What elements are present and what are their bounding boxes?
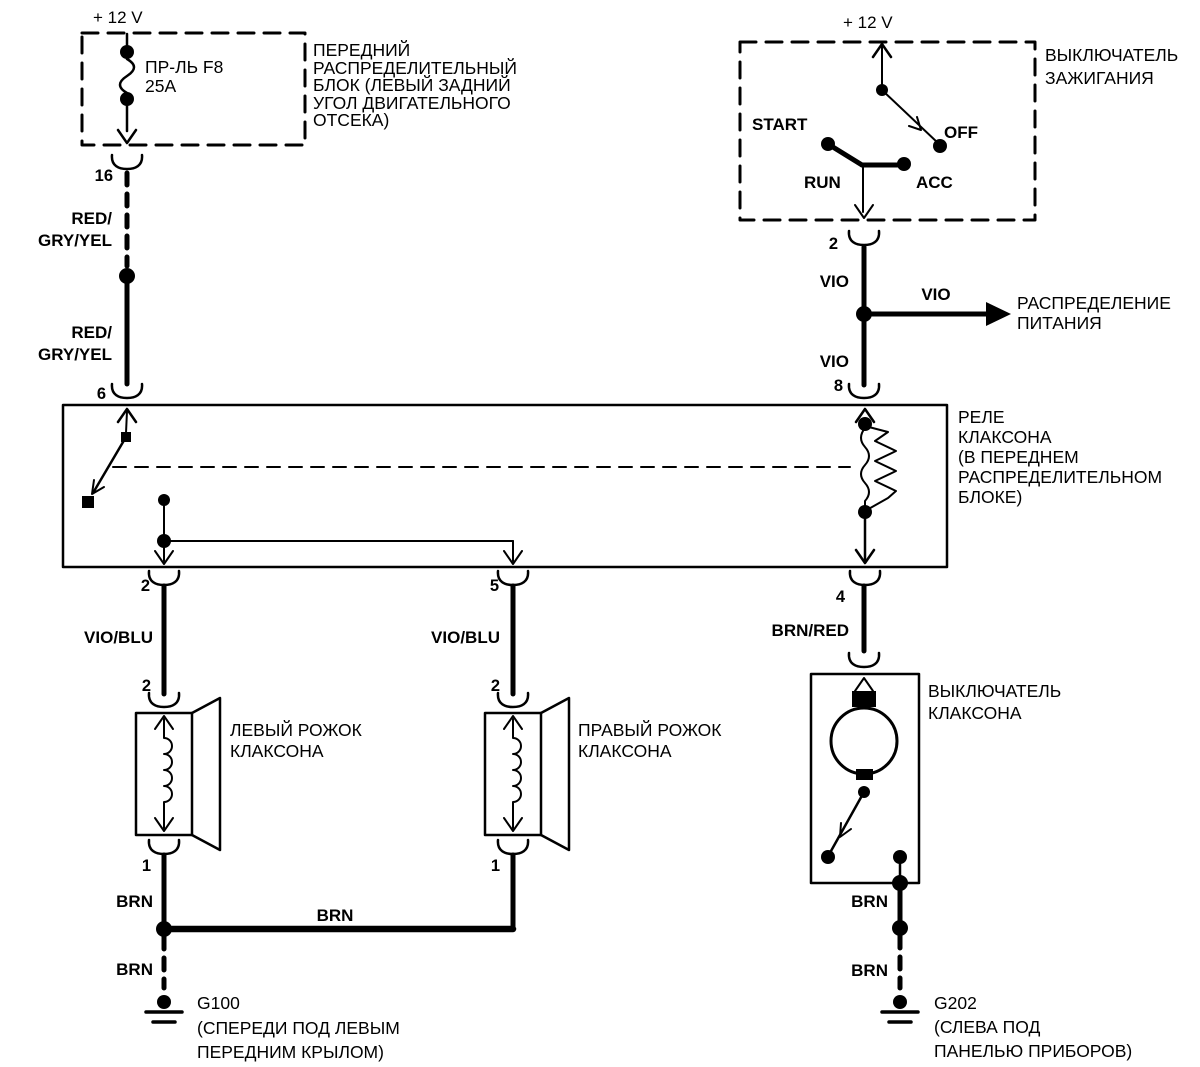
wire-label-brn-switch: BRN	[851, 892, 888, 911]
horn-switch: BRN/RED ВЫКЛЮЧАТЕЛЬ КЛАКСОНА BRN BRN G20…	[772, 586, 1133, 1061]
fuse-name: ПР-ЛЬ F8	[145, 57, 223, 77]
connector-icon	[112, 155, 142, 169]
relay-box-outline	[63, 405, 947, 567]
horn-wiring-diagram: + 12 V ПР-ЛЬ F8 25A ПЕРЕДНИЙ РАСПРЕДЕЛИТ…	[0, 0, 1200, 1067]
horn-trumpet-icon	[192, 698, 220, 850]
ground-g100-label-line2: ПЕРЕДНИМ КРЫЛОМ)	[197, 1042, 384, 1062]
horn-switch-label-line2: КЛАКСОНА	[928, 703, 1022, 723]
relay-label-line5: БЛОКЕ)	[958, 487, 1022, 507]
pin-8: 8	[834, 377, 843, 395]
connector-icon	[149, 840, 179, 854]
wiring-diagram-page: + 12 V ПР-ЛЬ F8 25A ПЕРЕДНИЙ РАСПРЕДЕЛИТ…	[0, 0, 1200, 1067]
ignition-arm-off	[882, 90, 938, 143]
ground-g202-label-line1: (СЛЕВА ПОД	[934, 1017, 1040, 1037]
ground-g100-label-line1: (СПЕРЕДИ ПОД ЛЕВЫМ	[197, 1018, 400, 1038]
fuse-element-icon	[120, 59, 134, 93]
connector-icon	[849, 231, 879, 245]
wire-label-red-gry-yel-upper-1: RED/	[71, 209, 112, 228]
fuse-terminal-top	[120, 45, 134, 59]
wire-label-red-gry-yel-lower-1: RED/	[71, 323, 112, 342]
fuse-box-outline	[82, 33, 305, 145]
supply-label-right: + 12 V	[843, 13, 893, 32]
pin-16: 16	[95, 167, 113, 185]
relay-label-line1: РЕЛЕ	[958, 407, 1005, 427]
pin-6: 6	[97, 385, 106, 403]
vio-feed-and-branch: VIO VIO РАСПРЕДЕЛЕНИЕ ПИТАНИЯ VIO 8	[820, 247, 1171, 398]
fuse-rating: 25A	[145, 76, 176, 96]
front-distribution-block: + 12 V ПР-ЛЬ F8 25A ПЕРЕДНИЙ РАСПРЕДЕЛИТ…	[82, 8, 517, 185]
pin-2-left-horn: 2	[142, 677, 151, 695]
position-start: START	[752, 115, 808, 134]
right-horn-label-line1: ПРАВЫЙ РОЖОК	[578, 719, 722, 740]
wire-label-vio-branch: VIO	[921, 285, 950, 304]
relay-label-line4: РАСПРЕДЕЛИТЕЛЬНОМ	[958, 467, 1162, 487]
position-acc: ACC	[916, 173, 953, 192]
relay-coil-resistor-icon	[865, 426, 896, 511]
ground-g100-name: G100	[197, 993, 240, 1013]
pin-2-relay-out: 2	[141, 577, 150, 595]
pin-2-right-horn: 2	[491, 677, 500, 695]
wire-label-brn-dashed-right: BRN	[851, 961, 888, 980]
pin-2-ignition: 2	[829, 235, 838, 253]
horn-relay: РЕЛЕ КЛАКСОНА (В ПЕРЕДНЕМ РАСПРЕДЕЛИТЕЛЬ…	[63, 405, 1162, 606]
connector-icon	[498, 571, 528, 585]
arrow-tip-icon	[909, 117, 921, 130]
acc-contact	[897, 157, 911, 171]
fuse-box-label-line1: ПЕРЕДНИЙ	[313, 39, 410, 60]
relay-coil-icon	[861, 428, 869, 511]
wire-label-brn-link: BRN	[317, 906, 354, 925]
wire-label-vio-blu-right: VIO/BLU	[431, 628, 500, 647]
ground-g202-name: G202	[934, 993, 977, 1013]
relay-label-line2: КЛАКСОНА	[958, 427, 1052, 447]
arrow-up-icon	[855, 678, 873, 691]
ground-path-left: BRN BRN BRN G100 (СПЕРЕДИ ПОД ЛЕВЫМ ПЕРЕ…	[116, 855, 513, 1062]
branch-arrowhead-icon	[986, 302, 1011, 326]
pin-1-right-horn: 1	[491, 857, 500, 875]
pin-4-relay-out: 4	[836, 588, 846, 606]
relay-switch-arm	[93, 437, 126, 493]
wire-label-vio-upper: VIO	[820, 272, 849, 291]
fuse-terminal-bottom	[120, 92, 134, 106]
ignition-arm-run	[828, 144, 862, 165]
power-distribution-label-line2: ПИТАНИЯ	[1017, 313, 1102, 333]
switch-contact-left	[821, 850, 835, 864]
left-feed-wire: RED/ GRY/YEL RED/ GRY/YEL 6	[38, 173, 142, 403]
ground-icon	[882, 995, 918, 1022]
relay-arm-contact	[82, 496, 94, 508]
switch-arm	[831, 792, 864, 851]
right-horn-label-line2: КЛАКСОНА	[578, 741, 672, 761]
wire-label-vio-lower: VIO	[820, 352, 849, 371]
ground-icon	[146, 995, 182, 1022]
left-horn-label-line1: ЛЕВЫЙ РОЖОК	[230, 719, 363, 740]
switch-terminal-block	[852, 691, 876, 707]
horn-switch-label-line1: ВЫКЛЮЧАТЕЛЬ	[928, 681, 1061, 701]
right-horn: VIO/BLU 2 ПРАВЫЙ РОЖОК КЛАКСОНА 1	[431, 586, 722, 929]
connector-icon	[849, 653, 879, 667]
relay-coil-terminal-bottom	[858, 505, 872, 519]
supply-label-left: + 12 V	[93, 8, 143, 27]
horn-coil-icon	[164, 719, 172, 828]
wire-label-brn-red: BRN/RED	[772, 621, 849, 640]
switch-plunger	[856, 769, 873, 780]
ignition-label-line2: ЗАЖИГАНИЯ	[1045, 68, 1154, 88]
wire-label-vio-blu-left: VIO/BLU	[84, 628, 153, 647]
power-distribution-label-line1: РАСПРЕДЕЛЕНИЕ	[1017, 293, 1171, 313]
left-horn: VIO/BLU 2 ЛЕВЫЙ РОЖОК КЛАКСОНА 1	[84, 586, 363, 875]
horn-trumpet-icon	[541, 698, 569, 850]
position-run: RUN	[804, 173, 841, 192]
relay-pivot-lead	[126, 411, 127, 433]
wire-label-red-gry-yel-lower-2: GRY/YEL	[38, 345, 112, 364]
connector-icon	[149, 571, 179, 585]
fuse-box-label-line3: БЛОК (ЛЕВЫЙ ЗАДНИЙ	[313, 74, 511, 95]
pin-1-left-horn: 1	[142, 857, 151, 875]
connector-icon	[850, 571, 880, 585]
wire-label-brn-dashed-left: BRN	[116, 960, 153, 979]
position-off: OFF	[944, 123, 978, 142]
connector-icon	[498, 840, 528, 854]
ignition-label-line1: ВЫКЛЮЧАТЕЛЬ	[1045, 45, 1178, 65]
relay-label-line3: (В ПЕРЕДНЕМ	[958, 447, 1079, 467]
wire-label-brn-left: BRN	[116, 892, 153, 911]
horn-button-icon	[831, 708, 897, 774]
ground-g202-label-line2: ПАНЕЛЬЮ ПРИБОРОВ)	[934, 1041, 1132, 1061]
left-horn-label-line2: КЛАКСОНА	[230, 741, 324, 761]
ignition-switch: + 12 V OFF START RUN ACC ВЫКЛЮЧАТЕЛЬ ЗАЖ…	[740, 13, 1178, 253]
wire-label-red-gry-yel-upper-2: GRY/YEL	[38, 231, 112, 250]
horn-coil-icon	[513, 719, 521, 828]
fuse-box-label-line5: ОТСЕКА)	[313, 110, 389, 130]
pin-5-relay-out: 5	[490, 577, 499, 595]
